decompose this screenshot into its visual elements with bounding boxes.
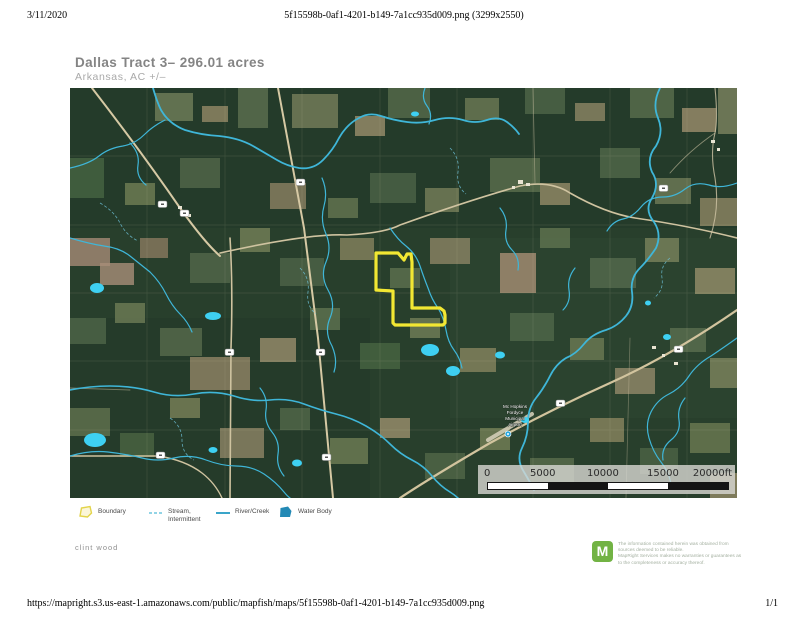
disclaimer-text: The information contained herein was obt… (618, 542, 744, 567)
svg-text:Fordyce: Fordyce (507, 410, 524, 415)
legend-label: Stream,Intermittent (168, 505, 201, 524)
svg-text:Mc Hopkins: Mc Hopkins (503, 404, 528, 409)
legend-label: River/Creek (235, 505, 269, 516)
scale-label-15000: 15000 (647, 468, 679, 479)
map-subtitle: Arkansas, AC +/– (75, 71, 166, 83)
svg-text:Municipal: Municipal (505, 416, 524, 421)
scale-bar-segments (487, 482, 729, 490)
satellite-map: Mc Hopkins Fordyce Municipal Airport 0 5… (70, 88, 737, 498)
legend-label: Water Body (298, 505, 332, 516)
page-indicator: 1/1 (765, 598, 778, 609)
svg-text:Airport: Airport (508, 422, 522, 427)
legend-item-river-creek: River/Creek (215, 505, 269, 519)
scale-label-5000: 5000 (530, 468, 555, 479)
airport-marker-icon (505, 431, 511, 437)
scale-bar: 0 5000 10000 15000 20000ft (478, 465, 735, 494)
dashed-stream-line-icon (148, 505, 164, 519)
print-url: https://mapright.s3.us-east-1.amazonaws.… (27, 598, 484, 609)
scale-label-10000: 10000 (587, 468, 619, 479)
river-line-icon (215, 505, 231, 519)
legend-item-boundary: Boundary (78, 505, 126, 519)
water-body-polygon-icon (278, 505, 294, 519)
legend-label: Boundary (98, 505, 126, 516)
legend-item-stream-intermittent: Stream,Intermittent (148, 505, 201, 524)
legend-item-water-body: Water Body (278, 505, 332, 519)
author-name: clint wood (75, 543, 118, 552)
mapright-logo: M (592, 541, 613, 562)
print-filename: 5f15598b-0af1-4201-b149-7a1cc935d009.png… (0, 10, 808, 21)
boundary-polygon-icon (78, 505, 94, 519)
scale-label-20000ft: 20000ft (693, 468, 732, 479)
legend: Boundary Stream,Intermittent River/Creek… (0, 498, 808, 536)
satellite-map-image: Mc Hopkins Fordyce Municipal Airport (70, 88, 737, 498)
map-title: Dallas Tract 3– 296.01 acres (75, 55, 265, 70)
printed-map-page: 3/11/2020 5f15598b-0af1-4201-b149-7a1cc9… (0, 0, 808, 624)
scale-label-0: 0 (484, 468, 490, 479)
